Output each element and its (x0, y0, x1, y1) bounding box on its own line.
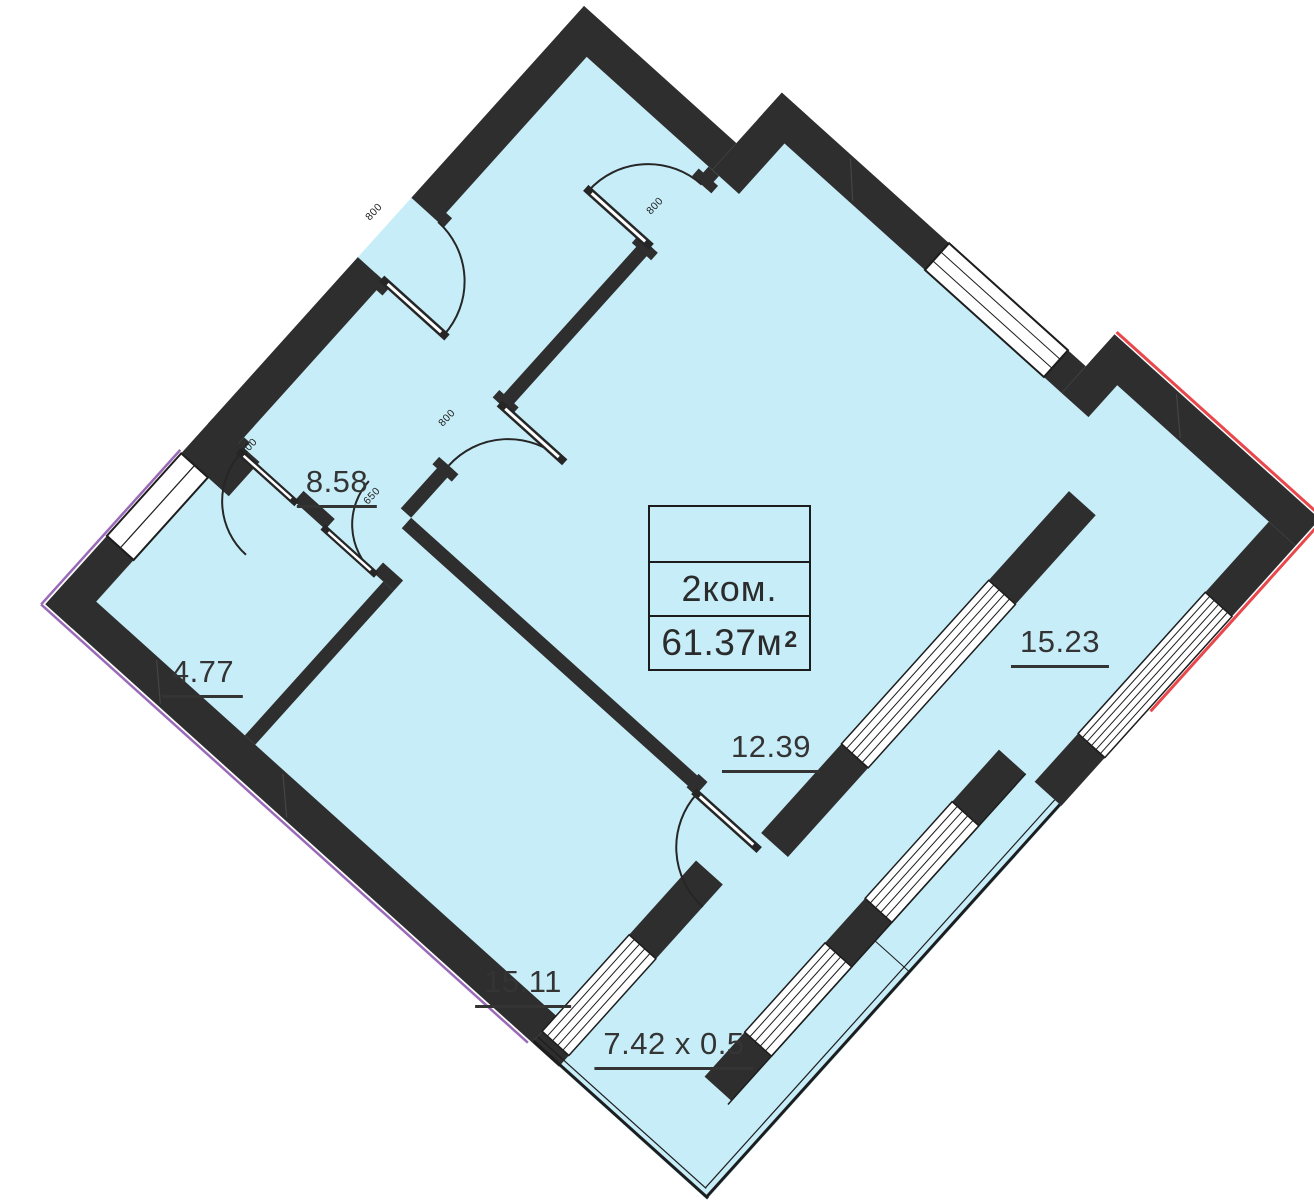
room-label-bathroom: 4.77 (163, 654, 243, 698)
unit-area-value: 61.37 (661, 622, 756, 664)
floor-plan-page: 8.58 4.77 15.23 12.39 15.11 7.42 x 0.5 8… (0, 0, 1314, 1202)
room-area-hallway: 8.58 (306, 464, 368, 499)
room-area-living-room: 15.11 (484, 964, 562, 999)
balcony-dimensions-label: 7.42 x 0.5 (594, 1026, 753, 1070)
unit-rooms-count: 2ком. (650, 561, 809, 615)
room-area-bathroom: 4.77 (172, 654, 234, 689)
balcony-dimensions: 7.42 x 0.5 (603, 1026, 744, 1061)
room-area-kitchen: 15.23 (1020, 624, 1100, 659)
room-label-kitchen: 15.23 (1011, 624, 1109, 668)
unit-total-area: 61.37м2 (650, 615, 809, 669)
unit-area-unit: м (756, 622, 782, 664)
room-label-living-room: 15.11 (475, 964, 571, 1008)
room-area-bedroom: 12.39 (731, 729, 811, 764)
room-label-bedroom: 12.39 (722, 729, 820, 773)
unit-card-empty-row (650, 507, 809, 561)
unit-area-sup: 2 (784, 626, 797, 653)
unit-info-card: 2ком. 61.37м2 (648, 505, 811, 671)
